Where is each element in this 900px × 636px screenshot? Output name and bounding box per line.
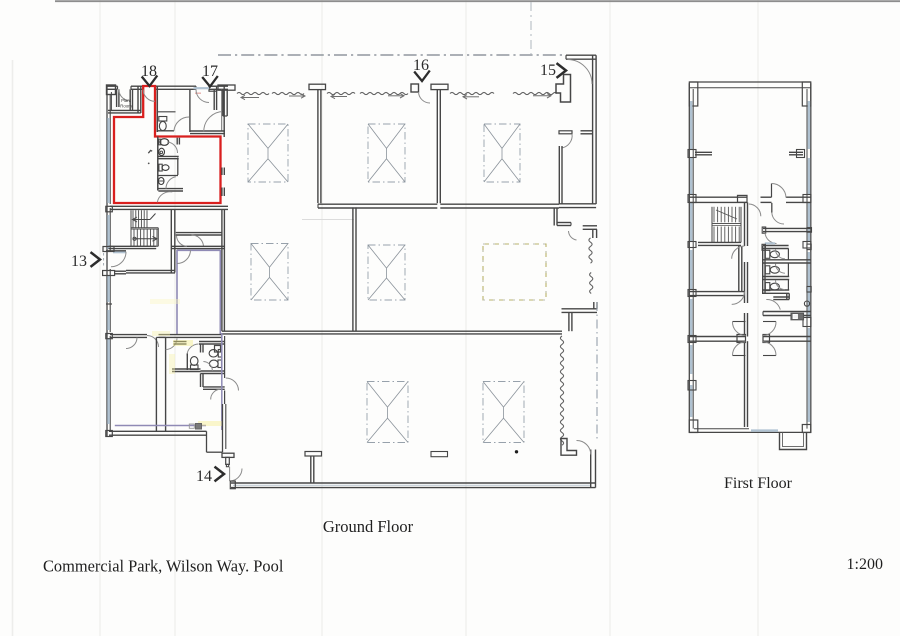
svg-text:First Floor: First Floor xyxy=(724,475,793,492)
svg-text:15: 15 xyxy=(540,62,556,79)
svg-text:13: 13 xyxy=(71,253,87,270)
svg-text:14: 14 xyxy=(196,468,212,485)
svg-text:Room: Room xyxy=(120,104,132,109)
svg-text:1:200: 1:200 xyxy=(847,556,883,573)
svg-text:Commercial Park, Wilson Way. P: Commercial Park, Wilson Way. Pool xyxy=(43,557,284,576)
svg-text:Ground Floor: Ground Floor xyxy=(323,517,414,536)
svg-text:Plant: Plant xyxy=(121,98,132,103)
